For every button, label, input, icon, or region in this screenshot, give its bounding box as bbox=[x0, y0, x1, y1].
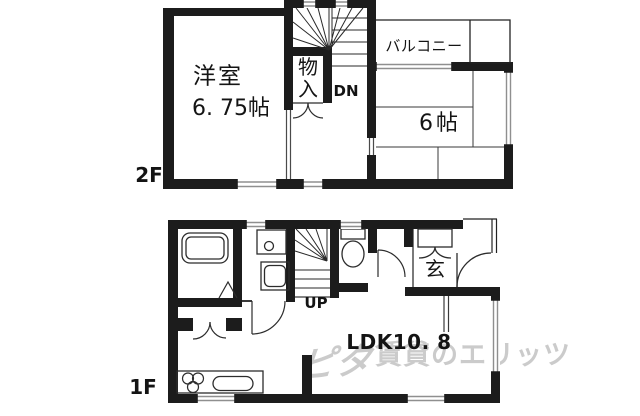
stairs-up-label: UP bbox=[304, 295, 327, 312]
stairs-down-label: DN bbox=[333, 83, 358, 100]
bathtub bbox=[182, 233, 228, 263]
entrance-label: 玄 bbox=[425, 258, 445, 280]
staircase-1f bbox=[295, 229, 330, 288]
balcony-label: バルコニー bbox=[385, 38, 462, 55]
floor1-windows bbox=[197, 220, 500, 403]
floor1-plan bbox=[168, 219, 500, 403]
ldk-label: LDK10. 8 bbox=[346, 331, 451, 353]
shoe-cabinet bbox=[418, 229, 452, 258]
floorplan-canvas bbox=[0, 0, 640, 416]
floorplan-image: ピタ 賃貸のエリッツ bbox=[0, 0, 640, 416]
floor1-label: 1F bbox=[129, 376, 157, 398]
washroom-door bbox=[252, 301, 285, 334]
western-room-size: 6. 75帖 bbox=[192, 97, 270, 121]
japanese-room-size: 6帖 bbox=[419, 112, 461, 136]
washing-machine-pan bbox=[261, 262, 289, 290]
toilet bbox=[341, 229, 365, 267]
floor2-label: 2F bbox=[135, 164, 163, 186]
sliding-doors-2f bbox=[287, 110, 374, 179]
closet-doors-2f bbox=[293, 103, 323, 118]
washbasin bbox=[257, 230, 286, 254]
entrance-door bbox=[457, 253, 491, 287]
western-room-name: 洋室 bbox=[193, 64, 243, 89]
stove bbox=[183, 373, 204, 393]
kitchen-sink bbox=[213, 377, 253, 391]
closet-doors-1f bbox=[193, 322, 226, 339]
toilet-door bbox=[378, 250, 405, 277]
closet-label: 物入 bbox=[297, 56, 320, 100]
